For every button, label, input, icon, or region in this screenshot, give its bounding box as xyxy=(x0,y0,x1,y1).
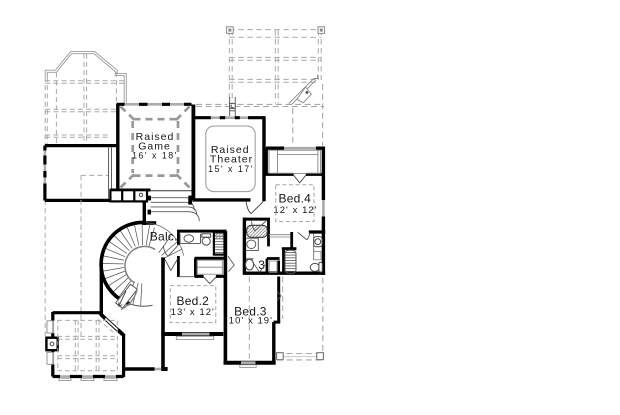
svg-text:12' x 12': 12' x 12' xyxy=(273,205,317,216)
svg-text:15' x 17': 15' x 17' xyxy=(208,164,254,174)
svg-text:Balc.: Balc. xyxy=(150,229,178,243)
svg-text:13' x 12': 13' x 12' xyxy=(171,307,215,318)
svg-text:10' x 19': 10' x 19' xyxy=(229,316,273,327)
svg-text:16' x 18': 16' x 18' xyxy=(132,150,178,160)
svg-text:Bed.4: Bed.4 xyxy=(278,192,311,206)
svg-text:Bed.2: Bed.2 xyxy=(176,294,209,308)
